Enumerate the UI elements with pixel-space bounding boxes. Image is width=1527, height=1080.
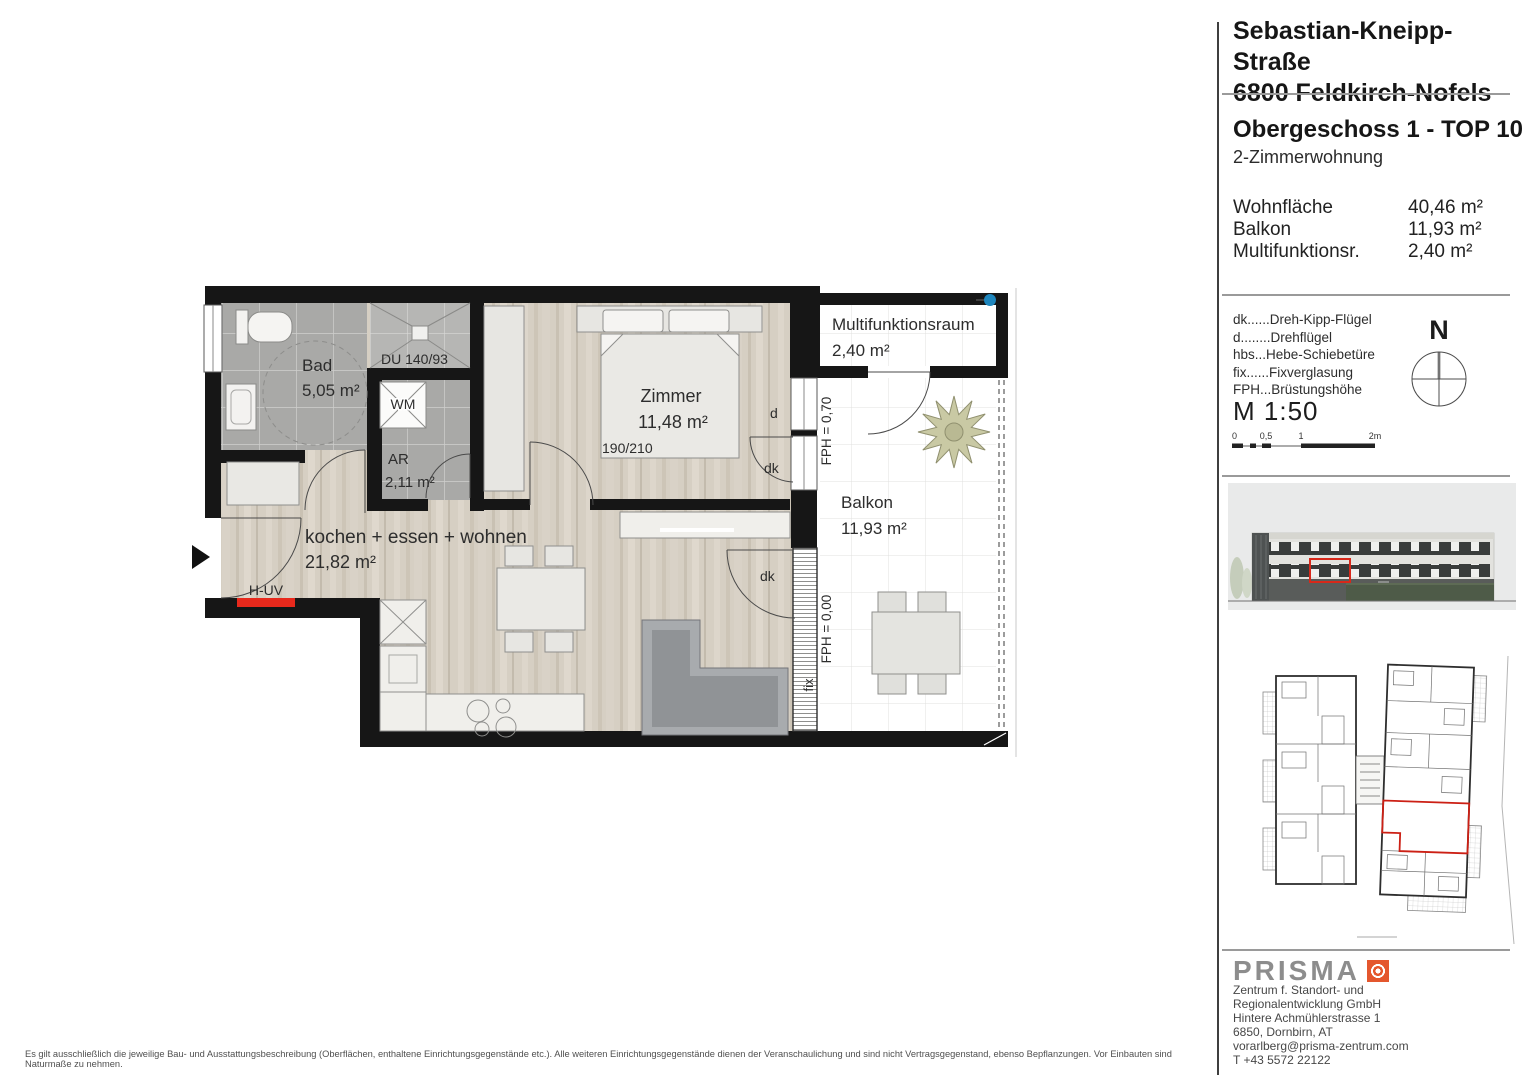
room-label-bad: Bad [302, 356, 332, 375]
area-value: 2,40 m² [1408, 241, 1472, 263]
balcony-chair [878, 592, 906, 612]
prisma-target-icon [1367, 960, 1389, 982]
project-address: Sebastian-Kneipp-Straße 6800 Feldkirch-N… [1233, 16, 1527, 109]
scale-tick: 0,5 [1260, 431, 1273, 441]
legend-item: fix......Fixverglasung [1233, 364, 1375, 382]
sideboard [620, 512, 790, 538]
toilet [248, 312, 292, 342]
contact-email: vorarlberg@prisma-zentrum.com [1233, 1040, 1409, 1054]
toilet-cistern [236, 310, 248, 344]
contact-line: Zentrum f. Standort- und [1233, 984, 1409, 998]
shower-drain [412, 326, 428, 340]
legend-item: d........Drehflügel [1233, 329, 1375, 347]
area-row: Balkon 11,93 m² [1233, 219, 1518, 241]
area-label: Multifunktionsr. [1233, 241, 1408, 263]
scale-tick: 1 [1298, 431, 1303, 441]
contact-line: 6850, Dornbirn, AT [1233, 1026, 1409, 1040]
fph-top-label: FPH = 0,70 [819, 397, 834, 466]
entrance-arrow-icon [192, 545, 210, 569]
room-area-mfr: 2,40 m² [832, 341, 890, 360]
floorplan-overview-image [1262, 656, 1520, 944]
dining-table [497, 568, 585, 630]
room-area-ar: 2,11 m² [385, 474, 435, 491]
kitchen-counter [380, 692, 426, 731]
address-line1: Sebastian-Kneipp-Straße [1233, 16, 1527, 78]
room-area-living: 21,82 m² [305, 552, 376, 572]
room-label-mfr: Multifunktionsraum [832, 315, 975, 334]
overview-left-wing [1263, 676, 1356, 884]
overview-stair-core [1356, 756, 1384, 804]
area-row: Multifunktionsr. 2,40 m² [1233, 241, 1518, 263]
room-label-zimmer: Zimmer [641, 386, 702, 406]
property-line [1502, 656, 1514, 944]
dining-chair [505, 632, 533, 652]
window-label-dk-zimmer: dk [764, 460, 780, 476]
scale-label: M 1:50 [1233, 396, 1319, 427]
area-value: 40,46 m² [1408, 197, 1483, 219]
floor-plan-drawing: Bad 5,05 m² DU 140/93 WM AR 2,11 m² Zimm… [188, 278, 1024, 760]
window-label-dk-living: dk [760, 568, 776, 584]
room-label-balkon: Balkon [841, 493, 893, 512]
dining-chair [545, 632, 573, 652]
window-label-d: d [770, 405, 778, 421]
north-compass-icon: N [1402, 312, 1476, 418]
divider [1222, 475, 1510, 477]
legend: dk......Dreh-Kipp-Flügel d........Drehfl… [1233, 311, 1375, 399]
bed-size-label: 190/210 [602, 440, 653, 456]
fph-bottom-label: FPH = 0,00 [819, 595, 834, 664]
north-label: N [1429, 315, 1449, 345]
sheet-divider [1217, 22, 1219, 1075]
dining-chair [505, 546, 533, 566]
unit-title: Obergeschoss 1 - TOP 10 [1233, 116, 1523, 144]
room-area-bad: 5,05 m² [302, 381, 360, 400]
contact-block: Zentrum f. Standort- und Regionalentwick… [1233, 984, 1409, 1067]
room-area-balkon: 11,93 m² [841, 519, 907, 538]
divider [1222, 949, 1510, 951]
scale-tick: 2m [1369, 431, 1382, 441]
washer-label: WM [391, 396, 416, 412]
room-area-zimmer: 11,48 m² [638, 412, 708, 432]
shower-label: DU 140/93 [381, 351, 448, 367]
area-value: 11,93 m² [1408, 219, 1482, 241]
building-elevation-image [1228, 483, 1516, 610]
pillow [669, 310, 729, 332]
area-label: Balkon [1233, 219, 1408, 241]
dining-chair [545, 546, 573, 566]
unit-subtitle: 2-Zimmerwohnung [1233, 147, 1383, 168]
legend-item: dk......Dreh-Kipp-Flügel [1233, 311, 1375, 329]
blue-marker-icon [984, 294, 996, 306]
kitchen-appliance [380, 646, 426, 692]
huv-label: H-UV [249, 582, 284, 598]
balcony-table [872, 612, 960, 674]
overview-right-wing [1379, 665, 1486, 913]
divider [1222, 93, 1510, 95]
balcony-chair [918, 674, 946, 694]
contact-phone: T +43 5572 22122 [1233, 1054, 1409, 1068]
wardrobe [484, 306, 524, 491]
scale-tick: 0 [1232, 431, 1237, 441]
contact-line: Regionalentwicklung GmbH [1233, 998, 1409, 1012]
floorplan-sheet: Bad 5,05 m² DU 140/93 WM AR 2,11 m² Zimm… [0, 0, 1527, 1080]
legend-item: hbs...Hebe-Schiebetüre [1233, 346, 1375, 364]
room-label-ar: AR [388, 451, 409, 468]
disclaimer-text: Es gilt ausschließlich die jeweilige Bau… [25, 1049, 1175, 1069]
fix-label: fix [801, 678, 816, 692]
area-label: Wohnfläche [1233, 197, 1408, 219]
pillow [603, 310, 663, 332]
balcony-railing [999, 380, 1004, 729]
divider [1222, 294, 1510, 296]
huv-distribution-box [237, 598, 295, 607]
balcony-chair [918, 592, 946, 612]
balcony-chair [878, 674, 906, 694]
area-row: Wohnfläche 40,46 m² [1233, 197, 1518, 219]
room-label-living: kochen + essen + wohnen [305, 527, 527, 548]
living-glazing-fix [793, 548, 817, 731]
contact-line: Hintere Achmühlerstrasse 1 [1233, 1012, 1409, 1026]
scale-bar: 0 0,5 1 2m [1230, 430, 1390, 454]
entry-closet [227, 462, 299, 505]
